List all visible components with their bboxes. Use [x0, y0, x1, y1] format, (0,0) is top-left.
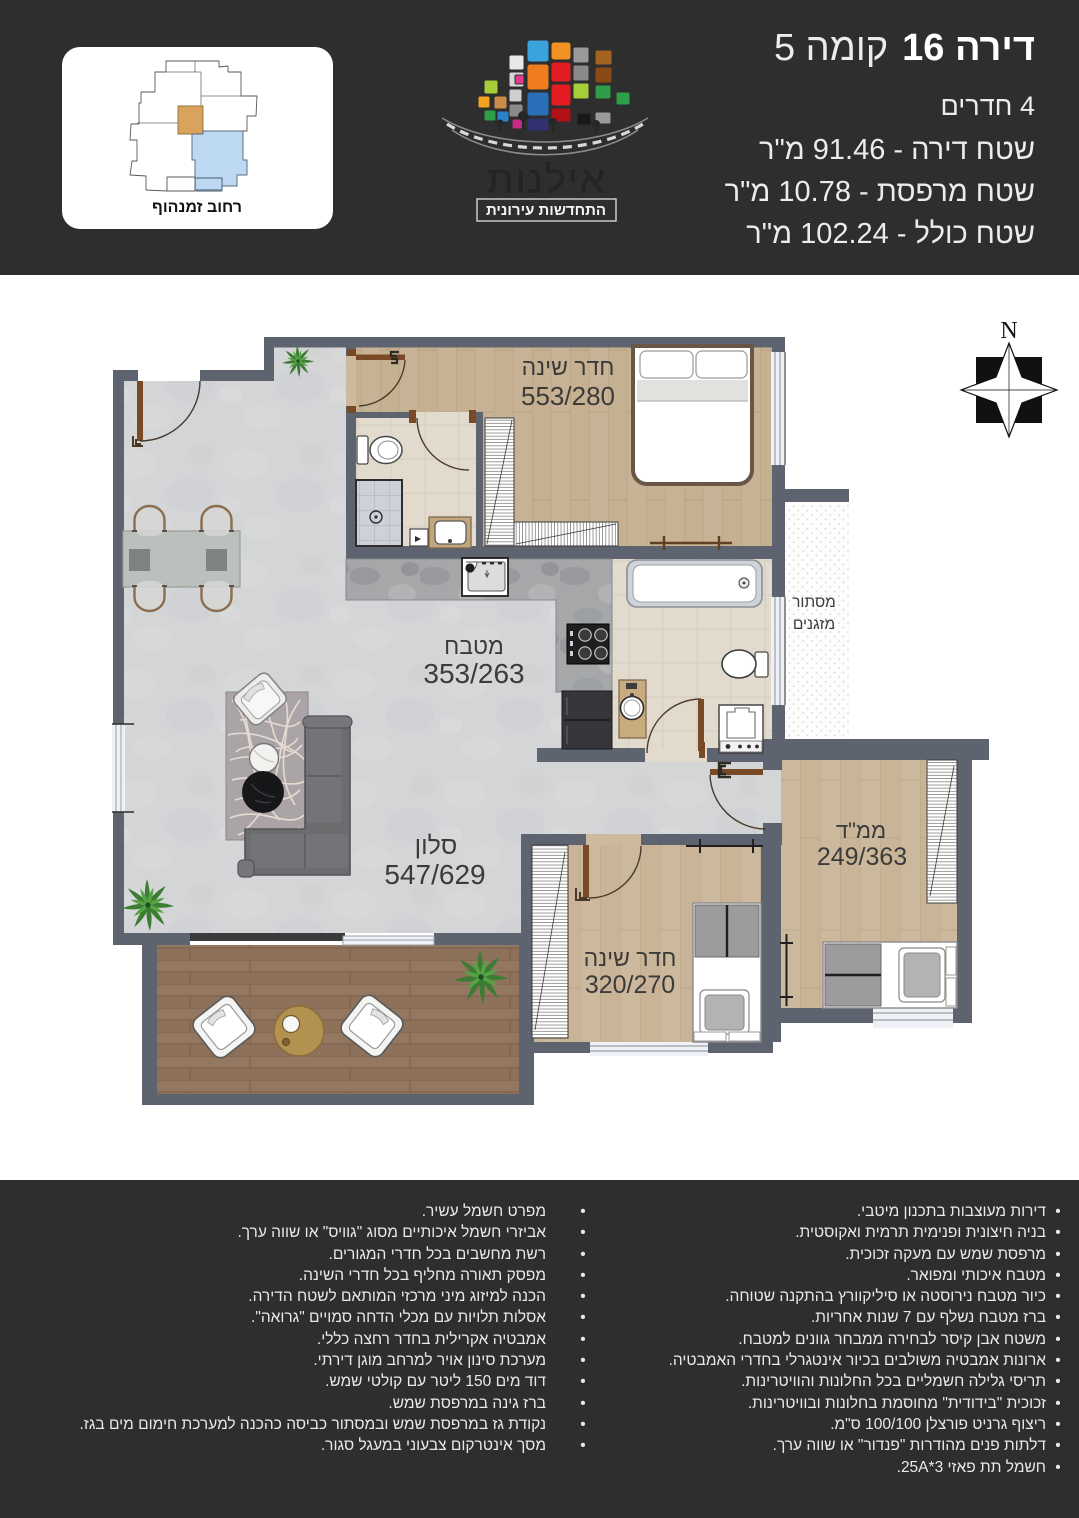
svg-text:249/363: 249/363: [817, 843, 907, 871]
svg-text:מסתור: מסתור: [792, 594, 836, 611]
svg-text:התחדשות עירונית: התחדשות עירונית: [486, 202, 606, 219]
svg-text:חדר שינה: חדר שינה: [522, 354, 615, 380]
svg-text:סלון: סלון: [415, 832, 458, 860]
svg-text:ממ"ד: ממ"ד: [836, 818, 886, 843]
svg-text:353/263: 353/263: [423, 658, 524, 689]
svg-text:חדר שינה: חדר שינה: [584, 945, 677, 971]
svg-text:547/629: 547/629: [384, 859, 485, 890]
svg-text:מזגנים: מזגנים: [793, 616, 835, 633]
svg-text:553/280: 553/280: [521, 381, 615, 411]
svg-text:N: N: [1000, 318, 1017, 344]
svg-text:אילנות: אילנות: [486, 158, 606, 202]
svg-text:320/270: 320/270: [585, 971, 675, 999]
svg-text:מטבח: מטבח: [444, 633, 504, 659]
svg-text:רחוב זמנהוף: רחוב זמנהוף: [152, 199, 242, 216]
